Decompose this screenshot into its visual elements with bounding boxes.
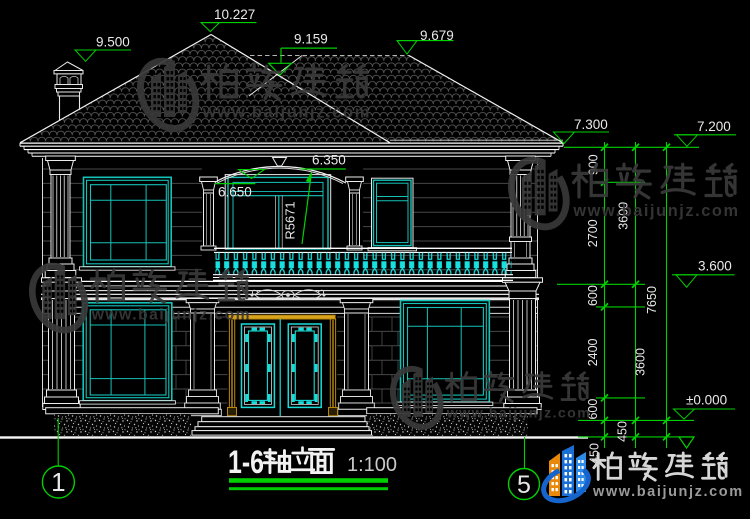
svg-text:3.600: 3.600: [698, 259, 732, 274]
svg-text:www.baijunjz.com: www.baijunjz.com: [91, 307, 251, 324]
svg-text:9.500: 9.500: [96, 35, 130, 50]
svg-text:600: 600: [586, 285, 600, 306]
svg-text:9.159: 9.159: [294, 32, 328, 47]
svg-text:7.200: 7.200: [697, 119, 731, 134]
svg-text:900: 900: [587, 154, 601, 175]
svg-text:9.679: 9.679: [420, 28, 454, 43]
svg-text:www.baijunjz.com: www.baijunjz.com: [446, 405, 591, 421]
svg-text:5: 5: [517, 471, 531, 499]
svg-text:10.227: 10.227: [214, 7, 255, 22]
svg-text:R5671: R5671: [283, 201, 298, 239]
svg-text:7650: 7650: [645, 286, 659, 314]
svg-text:1-6: 1-6: [228, 444, 264, 480]
svg-text:www.baijunjz.com: www.baijunjz.com: [202, 104, 371, 122]
svg-text:www.baijunjz.com: www.baijunjz.com: [592, 484, 744, 500]
svg-text:6.350: 6.350: [312, 153, 346, 168]
svg-text:3600: 3600: [634, 348, 648, 376]
svg-text:450: 450: [616, 421, 630, 442]
svg-text:7.300: 7.300: [574, 117, 608, 132]
svg-text:2700: 2700: [586, 219, 600, 247]
svg-text:2400: 2400: [586, 338, 600, 366]
svg-text:1:100: 1:100: [347, 454, 397, 476]
svg-text:6.650: 6.650: [218, 185, 252, 200]
svg-text:±0.000: ±0.000: [686, 393, 727, 408]
svg-text:www.baijunjz.com: www.baijunjz.com: [572, 202, 739, 220]
svg-text:1: 1: [51, 467, 65, 497]
